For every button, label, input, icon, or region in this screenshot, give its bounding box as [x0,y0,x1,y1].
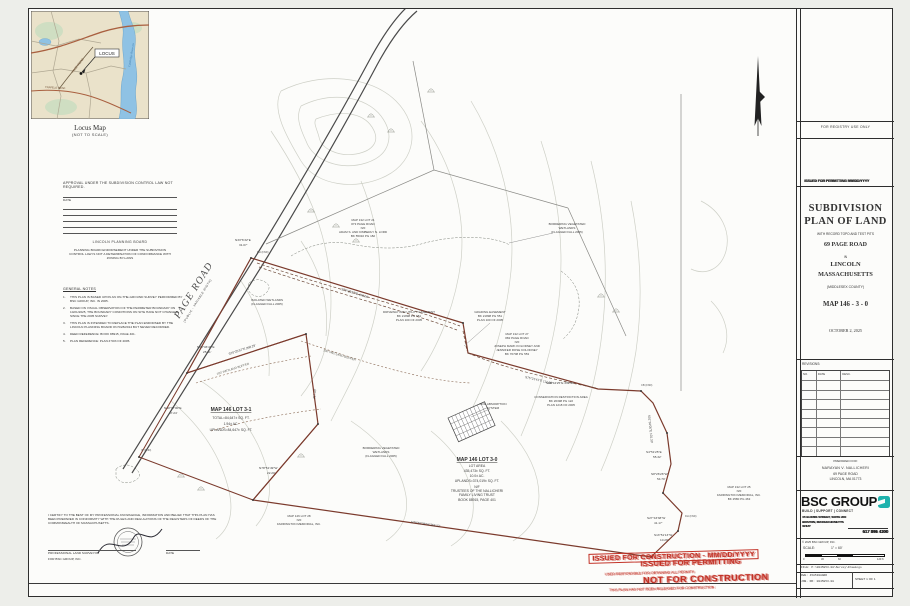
svg-text:TOTAL=84,647± SQ. FT.: TOTAL=84,647± SQ. FT. [212,416,249,420]
copyright-line: © 2025 BSC GROUP, INC. [802,540,835,544]
svg-text:PLAN 100 OF 2005: PLAN 100 OF 2005 [396,318,423,322]
scale-tick-0: 0 [803,558,804,561]
svg-text:MAP 146 LOT 3-1: MAP 146 LOT 3-1 [211,407,252,413]
planning-board-label: LINCOLN PLANNING BOARD [63,240,177,244]
contour-lines [171,79,727,546]
svg-text:54.70': 54.70' [657,477,666,481]
note-item: DEED REFERENCE: BOOK 88915, PAGE 401. [63,332,185,336]
scale-value: 1" = 60' [831,546,842,550]
svg-text:S70°25'57"E 268.29': S70°25'57"E 268.29' [228,343,257,356]
map-reference: MAP 146 - 3 - 0 [797,301,894,308]
grading-leader-line [464,323,490,346]
firm-zip: 02127 [802,524,810,528]
plan-title-line1: SUBDIVISION [797,203,894,214]
locus-subcaption: (NOT TO SCALE) [31,132,149,137]
svg-text:(FLAGGED FALL 2005): (FLAGGED FALL 2005) [251,302,283,306]
bearing-labels: S70°25'57"E 498.06' S70°25'57"E 268.29' … [164,238,672,542]
surveyor-label: PROFESSIONAL LAND SURVEYOR [48,551,99,555]
date-label: DATE [63,198,177,202]
svg-text:LOT AREA: LOT AREA [469,464,486,468]
revision-row [802,380,889,389]
svg-text:S27°43'38"W: S27°43'38"W [647,516,665,520]
note-item: THIS PLAN IS BASED UPON AN ON-THE-GROUND… [63,295,185,303]
svg-text:S8°26'26"W: S8°26'26"W [651,472,668,476]
signature-line [63,221,177,222]
svg-text:PLAN 100 OF 2005: PLAN 100 OF 2005 [477,318,504,322]
firm-name: BSC GROUP [801,494,877,509]
plan-title-line2: PLAN OF LAND [797,216,894,227]
firm-address-1: 15 ELKINS STREET, SUITE 200 [802,515,846,519]
stamp-note-2: THIS PLAN HAS NOT BEEN RELEASED FOR CONS… [609,585,714,592]
svg-text:47.24': 47.24' [169,411,178,415]
svg-text:SYSTEM: SYSTEM [487,406,500,410]
issued-for-permitting-stamp: ISSUED FOR PERMITTING [641,557,742,569]
plan-date: OCTOBER 2, 2025 [797,328,894,333]
svg-text:DH (FND): DH (FND) [257,250,269,254]
rev-col-desc: DESC. [840,371,889,380]
svg-text:N30°37'00"E: N30°37'00"E [164,406,182,410]
locus-caption: Locus Map [31,124,149,132]
general-notes: GENERAL NOTES THIS PLAN IS BASED UPON AN… [63,287,185,346]
approval-block: APPROVAL UNDER THE SUBDIVISION CONTROL L… [63,181,177,260]
locus-map: LOCUS PAGE ROAD TRAPELO ROAD Cambridge R… [31,11,151,137]
note-item: PLAN REFERENCE: PLAN # 503 OF 2005. [63,339,185,343]
rev-col-date: DATE [816,371,840,380]
firm-label: FOR BSC GROUP, INC. [48,557,81,561]
county-label: (MIDDLESEX COUNTY) [797,285,894,289]
client-name: NARAYAN V. NALLICHERI [797,466,894,470]
revision-row [802,409,889,418]
not-for-construction-stamp: NOT FOR CONSTRUCTION [643,572,769,586]
svg-text:FAMILY LIVING TRUST: FAMILY LIVING TRUST [459,493,495,497]
scale-tick-2: 60 [838,558,841,561]
svg-text:1.94± AC.: 1.94± AC. [224,422,239,426]
svg-text:55.32': 55.32' [653,455,662,459]
certification-block: I CERTIFY TO THE BEST OF MY PROFESSIONAL… [48,513,218,525]
svg-text:DH (FND): DH (FND) [685,514,697,518]
surveyor-stamp [90,521,166,563]
svg-text:N78°51'49"W: N78°51'49"W [259,466,277,470]
plan-sheet: PAGE ROAD (PUBLIC - VARIABLE WIDTH) MAP … [28,8,893,597]
svg-text:S4°51'25"E: S4°51'25"E [646,450,662,454]
svg-text:22.20': 22.20' [267,471,276,475]
prepared-for-label: PREPARED FOR: [797,459,894,463]
svg-text:N78°52'38"W 363.12': N78°52'38"W 363.12' [411,520,441,528]
plan-subtitle: WITH RECORD TOPO AND TEST PITS [797,232,894,236]
scale-label: SCALE: [803,546,815,550]
svg-text:10.28': 10.28' [660,538,669,542]
wetland-buffer-label: 100' WETLAND BUFFER [323,348,357,362]
svg-text:31.07': 31.07' [239,243,248,247]
svg-text:S75°21'41"E 112.08': S75°21'41"E 112.08' [525,375,554,385]
svg-text:217.10': 217.10' [312,388,317,399]
svg-text:BOOK 88915, PAGE 401: BOOK 88915, PAGE 401 [458,498,496,502]
sheet-number: SHEET 1 OF 1 [855,577,876,581]
signature-line [63,227,177,228]
bsc-logo-icon [878,496,890,508]
sheet-cell-divider [852,572,853,588]
abutter-lines [266,61,681,391]
svg-text:25.31': 25.31' [203,350,212,354]
site-marker [80,72,83,75]
lot-3-1-label: MAP 146 LOT 3-1 TOTAL=84,647± SQ. FT. 1.… [210,407,253,432]
firm-tagline: BUILD | SUPPORT | CONNECT [802,509,853,513]
signature-line [63,233,177,234]
svg-text:UPLANDS=374,019± SQ. FT.: UPLANDS=374,019± SQ. FT. [455,479,500,483]
revisions-header-row: NO. DATE DESC. [802,371,889,380]
svg-text:BK 55010 PG 182: BK 55010 PG 182 [351,234,376,238]
job-line: JOB. NO: 0045853.08 [801,580,834,583]
rev-col-no: NO. [802,371,816,380]
svg-text:BK 2580 PG 463: BK 2580 PG 463 [728,497,751,501]
locus-map-image: LOCUS PAGE ROAD TRAPELO ROAD Cambridge R… [31,11,149,119]
scale-tick-3: 120 ft [877,558,884,561]
bvw-leader-line [509,233,553,243]
in-label: IN [797,255,894,259]
svg-text:(FLAGGED FALL 2005): (FLAGGED FALL 2005) [551,230,583,234]
revision-row [802,427,889,436]
svg-text:CB (FND): CB (FND) [641,383,653,387]
approval-heading: APPROVAL UNDER THE SUBDIVISION CONTROL L… [63,181,177,189]
svg-text:N38°46'43"E: N38°46'43"E [197,345,215,349]
svg-text:PLAN 1218 OF 2005: PLAN 1218 OF 2005 [547,403,575,407]
svg-text:S01°33'05"E 101.33': S01°33'05"E 101.33' [647,415,654,444]
note-item: BASED ON VISUAL OBSERVATION OF THE PERIM… [63,306,185,318]
signature-line [63,209,177,210]
note-item: THIS PLAN IS INTENDED TO REPLACE THE PLA… [63,321,185,329]
svg-text:IP (FND): IP (FND) [141,448,151,452]
svg-text:(FLAGGED FALL 2005): (FLAGGED FALL 2005) [365,454,397,458]
file-line: FILE: P:\0045853.08\Survey\Drawings [801,566,862,569]
registry-label: FOR REGISTRY USE ONLY [797,125,894,129]
abutter-labels: MAP 132 LOT 21#73 PAGE ROAD N/FADAM S. A… [141,218,761,526]
svg-text:BK 76708 PG 553: BK 76708 PG 553 [505,352,530,356]
revision-row [802,418,889,427]
locus-label: LOCUS [99,51,115,56]
notes-heading: GENERAL NOTES [63,287,185,291]
stamp-date-label: DATE [166,551,174,555]
svg-text:UPLANDS=84,647± SQ. FT.: UPLANDS=84,647± SQ. FT. [210,428,253,432]
scale-bar [805,554,885,557]
town-label: LINCOLN [797,261,894,268]
revisions-label: REVISIONS: [802,362,820,366]
revision-row [802,437,889,446]
firm-address-2: BOSTON, MASSACHUSETTS [802,520,843,524]
svg-text:N33°6'32"E: N33°6'32"E [235,238,251,242]
issued-stamp: ISSUED FOR CONSTRUCTION - MM/DD/YYYY ISS… [588,542,794,604]
svg-text:FARRINGTON MEMORIAL, INC.: FARRINGTON MEMORIAL, INC. [277,522,321,526]
endorsement-note: PLANNING BOARD ENDORSEMENT UNDER THE SUB… [69,248,171,260]
revision-row [802,446,889,455]
lot-3-0-label: MAP 146 LOT 3-0 LOT AREA 435,473± SQ. FT… [451,457,503,502]
client-street: 69 PAGE ROAD [797,472,894,476]
scale-tick-1: 30 [821,558,824,561]
overprint-note: ISSUED FOR PERMITTING MM/DD/YYYY [804,179,869,183]
client-city: LINCOLN, MA 01773 [797,477,894,481]
svg-text:S13°51'13"W: S13°51'13"W [654,533,672,537]
revisions-table: NO. DATE DESC. [801,370,890,457]
wetland-buffer-label: 100' WETLAND BUFFER [216,361,250,376]
title-block: FOR REGISTRY USE ONLY ISSUED FOR PERMITT… [796,9,894,598]
dwg-line: DWG: 4585308ANR [801,574,827,577]
svg-text:41.17': 41.17' [654,521,663,525]
north-arrow-icon [755,56,766,136]
svg-text:10.0± AC.: 10.0± AC. [470,474,485,478]
state-label: MASSACHUSETTS [797,271,894,278]
revision-row [802,399,889,408]
signature-line [63,215,177,216]
firm-phone: 617 896 4300 [862,529,888,534]
site-address: 69 PAGE ROAD [797,242,894,248]
svg-text:MAP 146 LOT 3-0: MAP 146 LOT 3-0 [457,457,498,463]
svg-text:435,473± SQ. FT.: 435,473± SQ. FT. [464,469,491,473]
revision-row [802,390,889,399]
